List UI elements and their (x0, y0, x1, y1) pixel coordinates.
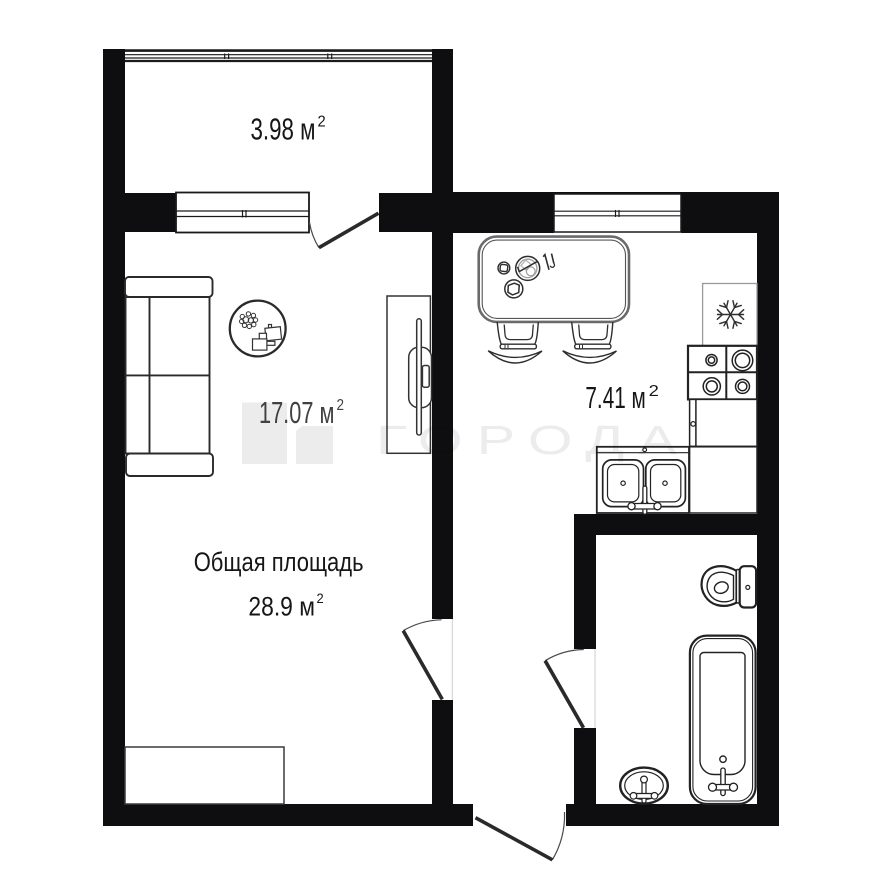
svg-text:2: 2 (337, 397, 345, 414)
svg-text:2: 2 (318, 113, 326, 130)
svg-text:Общая площадь: Общая площадь (194, 547, 364, 577)
svg-text:ГОРОДА: ГОРОДА (376, 417, 691, 463)
svg-text:17.07 м: 17.07 м (259, 395, 334, 430)
svg-text:28.9 м: 28.9 м (248, 591, 315, 621)
svg-text:2: 2 (317, 591, 324, 606)
svg-text:2: 2 (649, 383, 659, 400)
svg-text:3.98 м: 3.98 м (251, 112, 316, 147)
svg-text:7.41 м: 7.41 м (585, 380, 645, 415)
